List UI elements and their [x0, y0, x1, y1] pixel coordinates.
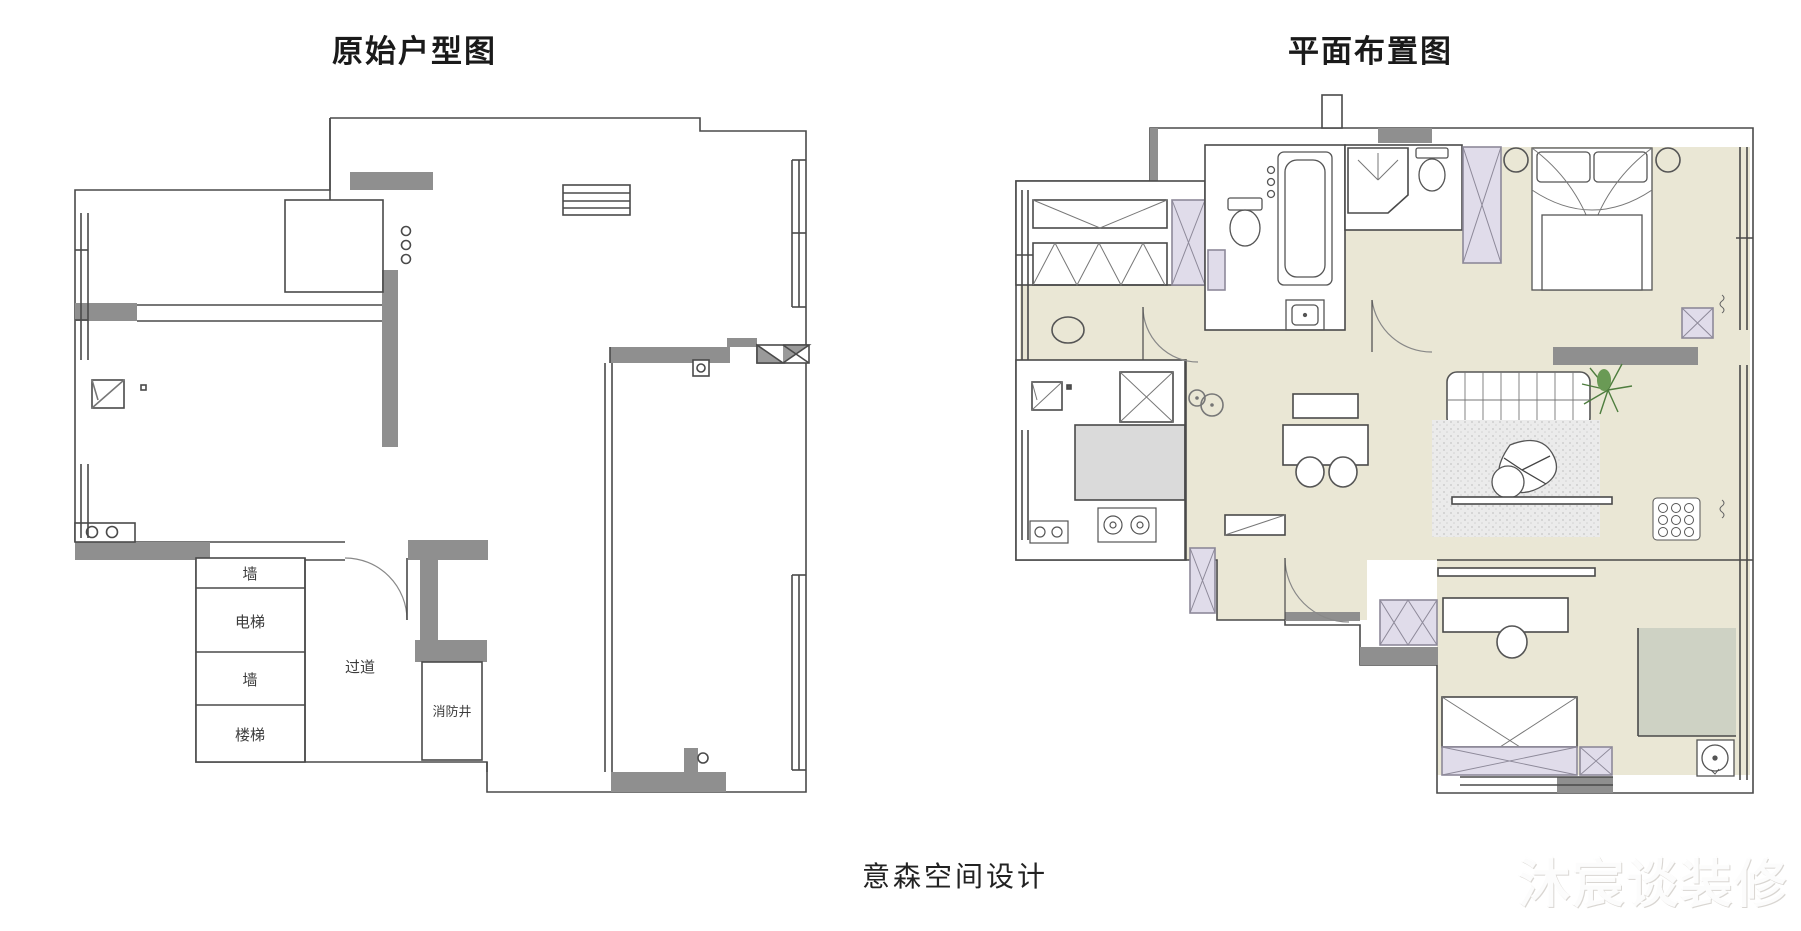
tv-console-icon — [1452, 497, 1612, 504]
kitchen — [1016, 360, 1186, 560]
window-left-upper — [75, 213, 88, 360]
entry-door-arc — [345, 558, 407, 620]
door-fold-icon — [92, 380, 146, 408]
floor-plans-graphic: 墙 电梯 墙 楼梯 过道 消防井 — [0, 0, 1801, 931]
pipe-circles — [402, 227, 411, 264]
tv-board-icon — [1438, 568, 1595, 576]
label-corridor: 过道 — [345, 658, 375, 676]
studio-name: 意森空间设计 — [862, 855, 1048, 895]
label-fire-shaft: 消防井 — [432, 704, 471, 720]
label-wall-top: 墙 — [242, 565, 257, 583]
right-plan-title: 平面布置图 — [1288, 26, 1453, 71]
threshold-stripes — [563, 185, 630, 215]
label-elevator: 电梯 — [235, 613, 265, 631]
top-bump — [1322, 95, 1342, 128]
counter — [1075, 425, 1185, 500]
watermark: 沐宸谈装修 — [1518, 842, 1788, 917]
double-bed-icon — [1532, 148, 1652, 290]
grid-chair-icon — [1653, 498, 1700, 540]
window-right-upper — [792, 160, 806, 307]
desk-chair-icon — [1497, 626, 1527, 658]
chair-icon — [1296, 457, 1324, 487]
floor-plan-canvas: 原始户型图 平面布置图 — [0, 0, 1801, 931]
stove-icon — [1098, 508, 1156, 542]
console-icon — [1293, 394, 1358, 418]
wall-segments — [75, 172, 757, 792]
window-right-lower — [792, 575, 806, 770]
left-plan-title: 原始户型图 — [332, 26, 497, 71]
kitchen-sink-icon — [1030, 521, 1068, 543]
slim-cabinet — [1208, 250, 1225, 290]
column-markers — [693, 360, 709, 763]
label-wall-bottom: 墙 — [242, 671, 257, 689]
chair-icon — [1329, 457, 1357, 487]
closet-room — [285, 200, 383, 292]
outer-wall-left-wing — [75, 118, 330, 542]
cloakroom — [1016, 181, 1205, 285]
label-stairs: 楼梯 — [235, 726, 265, 744]
left-floor-plan: 墙 电梯 墙 楼梯 过道 消防井 — [75, 118, 809, 792]
shower-area — [1345, 145, 1462, 230]
bathroom — [1205, 145, 1345, 330]
chest-icon — [1380, 600, 1437, 645]
washing-machine-icon — [1697, 740, 1734, 776]
fridge-icon — [1120, 372, 1173, 422]
flue-hatch — [757, 345, 809, 363]
balcony-floor — [1638, 628, 1736, 736]
dining-table-icon — [1283, 425, 1368, 465]
kitchen-sink-left — [75, 523, 135, 542]
right-floor-plan — [1016, 95, 1753, 793]
